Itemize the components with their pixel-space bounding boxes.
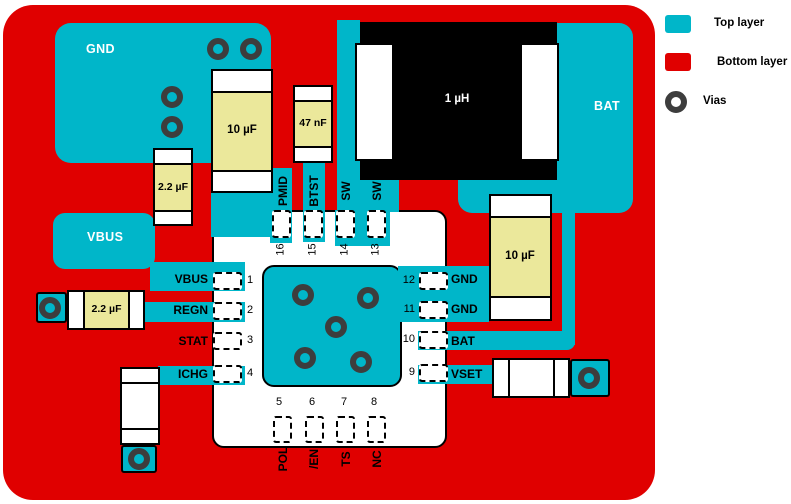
via	[128, 448, 150, 470]
pcb-layout-figure: GND VBUS BAT 2.2 µF 10 µF 47 nF 10 µF 2.…	[0, 0, 791, 504]
inductor-terminal-right	[520, 43, 559, 161]
ic-pad-3	[213, 332, 242, 350]
pin-label-nc: NC	[370, 442, 384, 476]
pin-label-en: /EN	[307, 442, 321, 476]
legend-top-layer-label: Top layer	[714, 17, 764, 29]
capacitor-terminal	[491, 196, 550, 216]
pin-number-5: 5	[271, 396, 287, 409]
pin-number-2: 2	[247, 304, 261, 317]
pin-label-gnd-11: GND	[451, 302, 496, 316]
pin-number-12: 12	[393, 274, 415, 287]
gnd-region-label: GND	[86, 42, 115, 56]
pin-label-regn: REGN	[154, 303, 208, 317]
cap-10uF-pmid-label: 10 µF	[217, 124, 267, 137]
cap-47nF-btst-label: 47 nF	[290, 117, 336, 130]
resistor-body	[122, 382, 158, 430]
capacitor-terminal	[213, 172, 271, 191]
pin-label-pol: POL	[276, 442, 290, 476]
pin-label-vset: VSET	[451, 367, 496, 381]
resistor-terminal	[555, 360, 568, 396]
capacitor-terminal	[155, 150, 191, 163]
via	[325, 316, 347, 338]
pin-number-7: 7	[336, 396, 352, 409]
pin-number-16: 16	[275, 235, 288, 265]
via	[207, 38, 229, 60]
resistor-terminal	[122, 369, 158, 382]
resistor-vset	[492, 358, 570, 398]
ic-pad-11	[419, 301, 448, 319]
legend-via-icon	[665, 91, 687, 113]
resistor-terminal	[494, 360, 508, 396]
pin-number-1: 1	[247, 274, 261, 287]
ic-pad-1	[213, 272, 242, 290]
via	[578, 367, 600, 389]
ic-pad-8	[367, 416, 386, 443]
legend-vias-label: Vias	[703, 95, 726, 107]
pin-number-13: 13	[370, 235, 383, 265]
bat-trace-vertical	[562, 205, 575, 345]
via	[161, 86, 183, 108]
resistor-terminal	[122, 430, 158, 443]
pin-number-15: 15	[307, 235, 320, 265]
via	[292, 284, 314, 306]
ic-pad-9	[419, 364, 448, 382]
pin-number-9: 9	[393, 366, 415, 379]
pin-number-8: 8	[366, 396, 382, 409]
pin-label-stat: STAT	[154, 334, 208, 348]
pin-label-bat: BAT	[451, 334, 496, 348]
ic-pad-6	[305, 416, 324, 443]
pin-label-gnd-12: GND	[451, 272, 496, 286]
bat-region-label: BAT	[585, 99, 629, 113]
capacitor-terminal	[491, 298, 550, 319]
capacitor-terminal	[213, 71, 271, 91]
via	[350, 351, 372, 373]
capacitor-terminal	[295, 148, 331, 161]
vbus-region-label: VBUS	[87, 230, 123, 244]
inductor-terminal-left	[355, 43, 394, 161]
pin-number-11: 11	[393, 303, 415, 316]
ic-pad-4	[213, 365, 242, 383]
via	[294, 347, 316, 369]
cap-10uF-bat-label: 10 µF	[495, 250, 545, 263]
pin-label-ichg: ICHG	[154, 367, 208, 381]
capacitor-terminal	[295, 87, 331, 100]
legend-top-layer-swatch	[665, 15, 691, 33]
legend-bottom-layer-label: Bottom layer	[717, 56, 787, 68]
pin-number-3: 3	[247, 334, 261, 347]
pin-label-sw-14: SW	[339, 169, 353, 213]
pin-label-btst: BTST	[307, 169, 321, 213]
pin-label-sw-13: SW	[370, 169, 384, 213]
ic-pad-12	[419, 272, 448, 290]
pin-number-4: 4	[247, 367, 261, 380]
cap-2.2uF-regn-label: 2.2 µF	[83, 303, 130, 316]
ic-pad-5	[273, 416, 292, 443]
via	[161, 116, 183, 138]
ic-pad-10	[419, 331, 448, 349]
capacitor-terminal	[130, 292, 143, 328]
via	[240, 38, 262, 60]
resistor-body	[508, 360, 555, 396]
cap-2.2uF-vbus-label: 2.2 µF	[150, 181, 196, 194]
ic-pad-7	[336, 416, 355, 443]
ic-pad-2	[213, 302, 242, 320]
capacitor-terminal	[155, 212, 191, 224]
via	[357, 287, 379, 309]
via	[39, 297, 61, 319]
legend-bottom-layer-swatch	[665, 53, 691, 71]
pin-label-vbus: VBUS	[154, 272, 208, 286]
pin-number-10: 10	[393, 333, 415, 346]
inductor-value-label: 1 µH	[427, 93, 487, 106]
capacitor-terminal	[69, 292, 83, 328]
pin-label-pmid: PMID	[276, 169, 290, 213]
pin-label-ts: TS	[339, 442, 353, 476]
pin-number-6: 6	[304, 396, 320, 409]
pin-number-14: 14	[339, 235, 352, 265]
